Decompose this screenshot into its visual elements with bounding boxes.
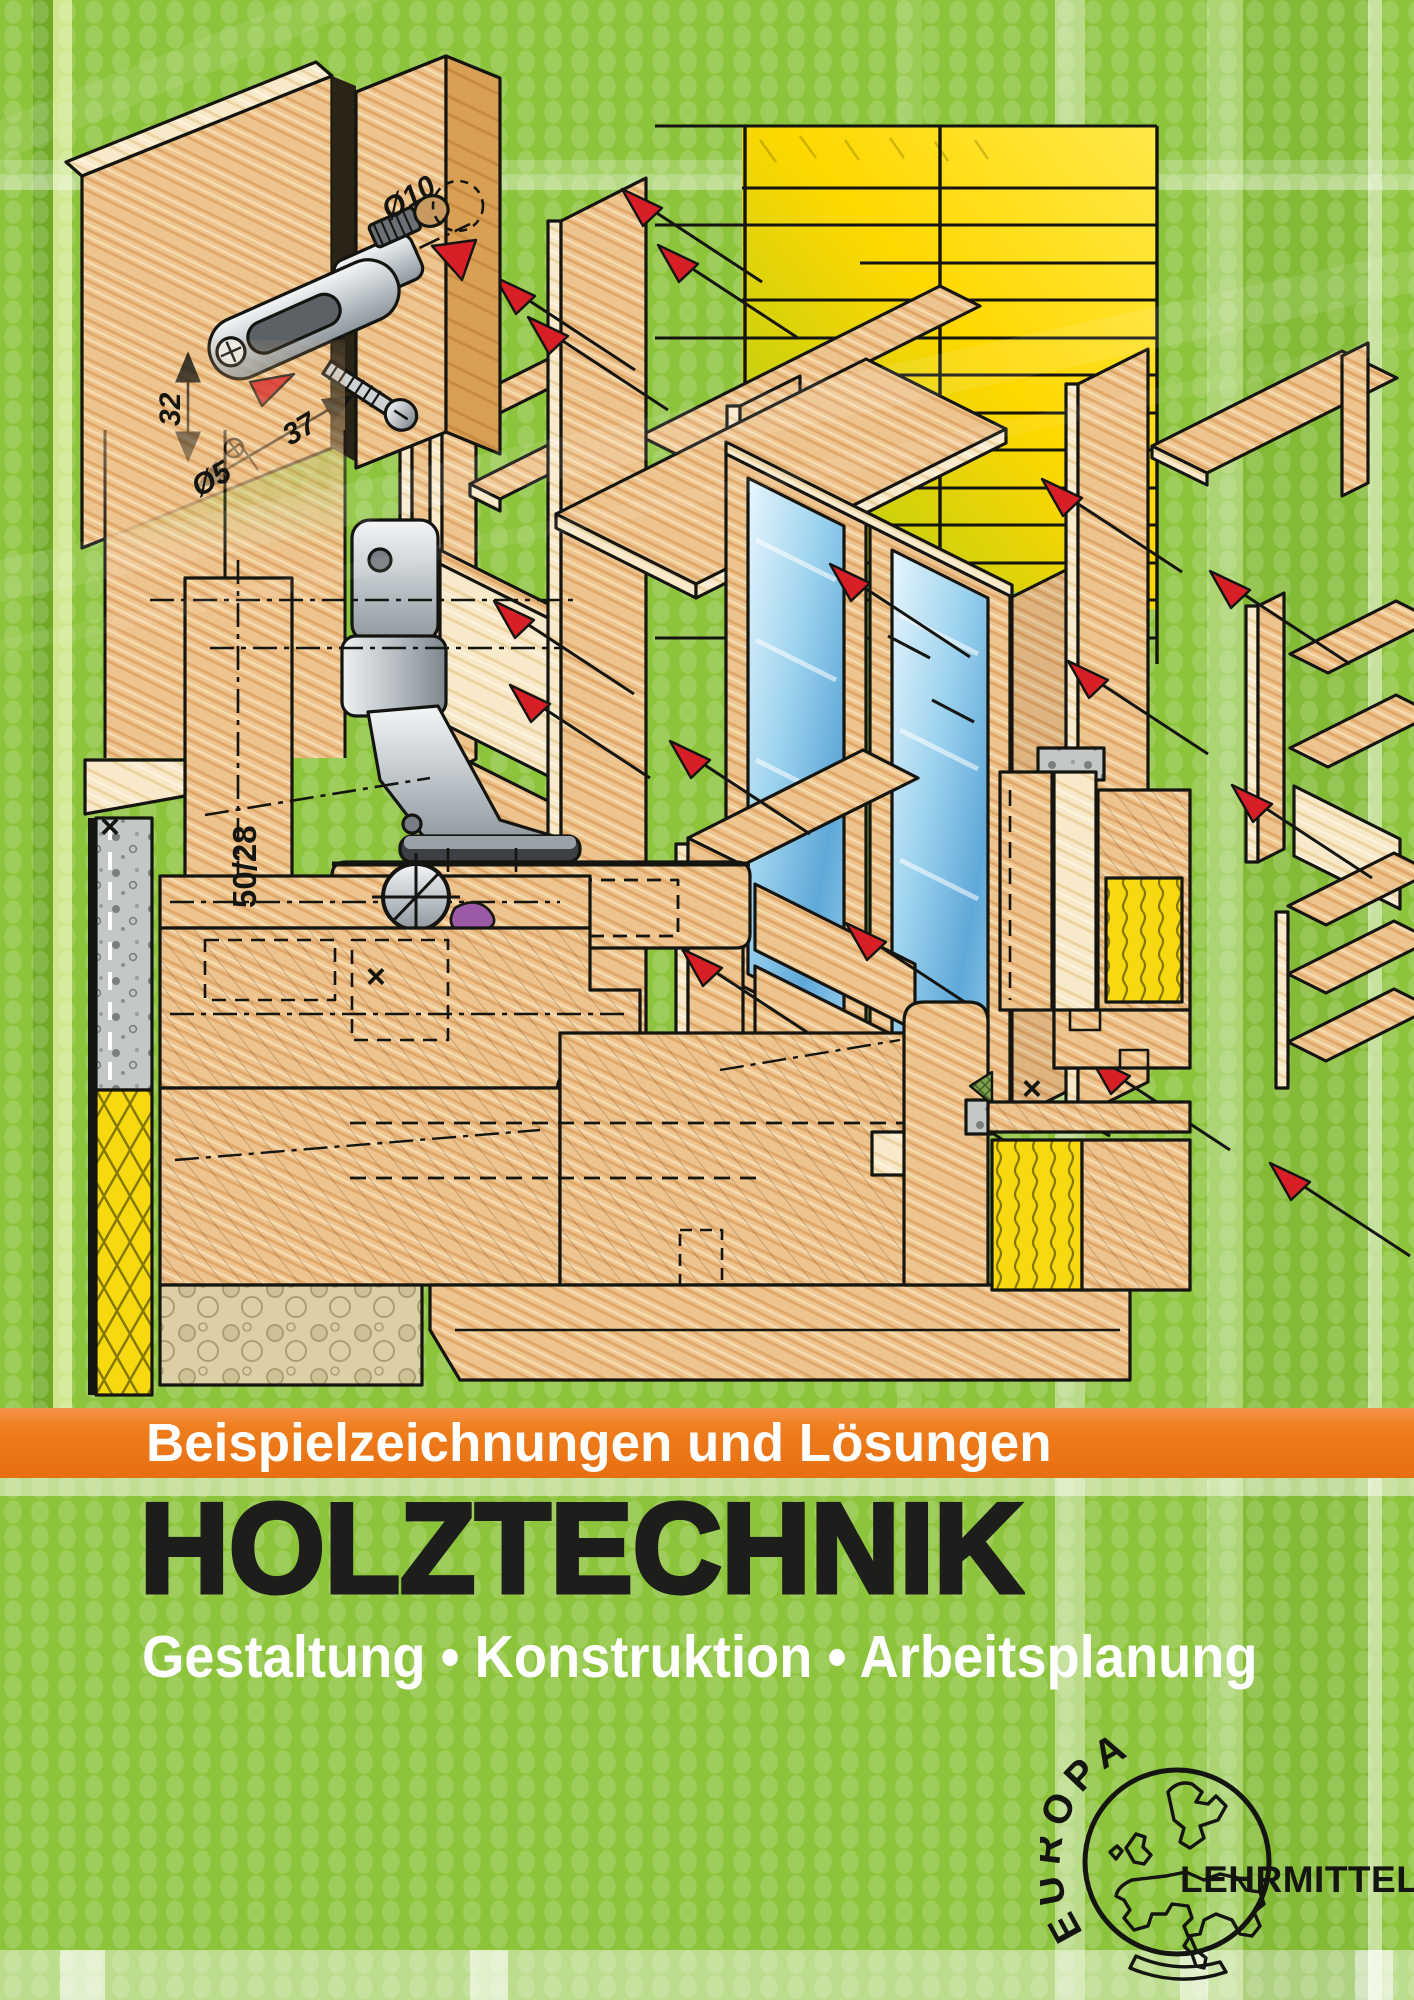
label-profile: 50/28: [226, 825, 263, 908]
book-title: HOLZTECHNIK: [140, 1485, 1023, 1612]
book-subtitle: Gestaltung • Konstruktion • Arbeitsplanu…: [142, 1628, 1258, 1687]
banner: Beispielzeichnungen und Lösungen: [0, 1408, 1414, 1478]
bottom-band-segment: [470, 1950, 508, 2000]
book-cover: Ø10 Ø5 37 32 50/28 × × × Beispielzeichnu…: [0, 0, 1414, 2000]
technical-illustration: Ø10 Ø5 37 32 50/28 × × ×: [0, 0, 1414, 1408]
bottom-band-segment: [60, 1950, 105, 2000]
label-cross-2: ×: [366, 958, 386, 996]
logo-wordmark: LEHRMITTEL: [1180, 1859, 1414, 1900]
label-cross-3: ×: [1022, 1070, 1042, 1108]
publisher-logo: EUROPA LEHRMITTEL: [1040, 1730, 1414, 2000]
banner-text: Beispielzeichnungen und Lösungen: [146, 1412, 1052, 1474]
label-cross-1: ×: [100, 808, 120, 846]
label-dim32: 32: [154, 392, 187, 426]
